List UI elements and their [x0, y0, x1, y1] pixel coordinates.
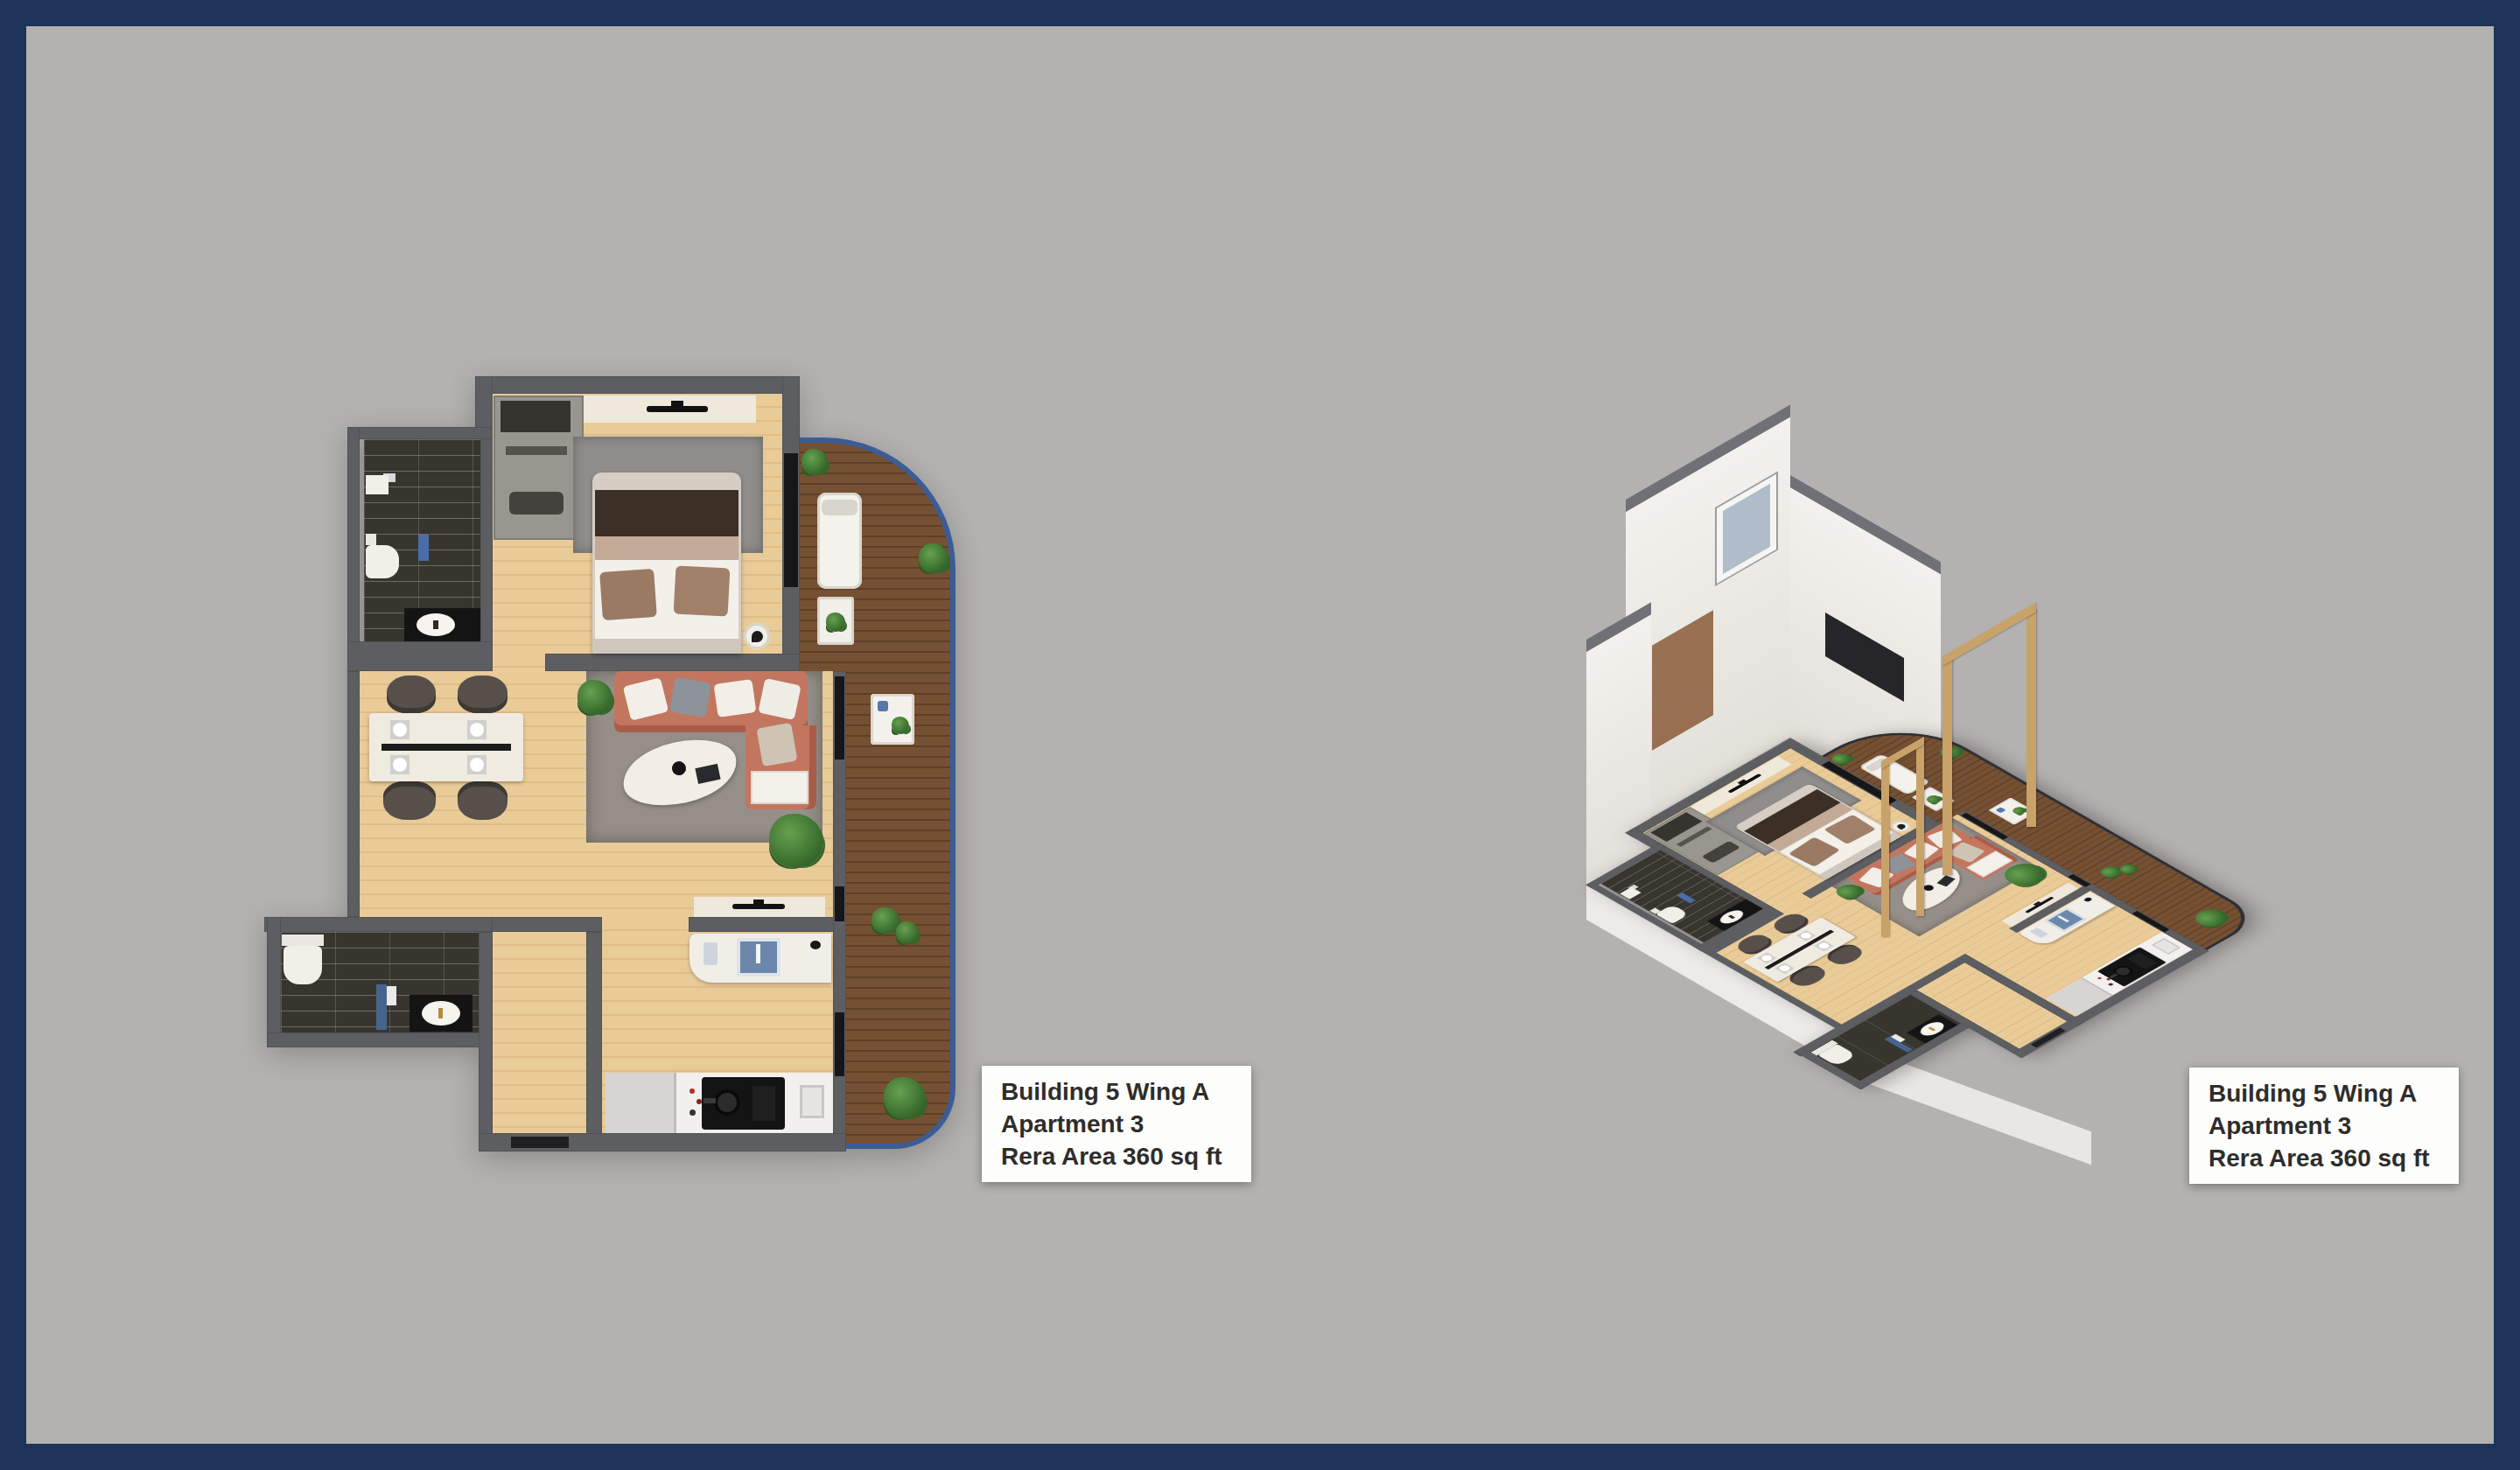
dining-chair: [383, 781, 436, 820]
tray-icon: [695, 764, 720, 784]
decor-icon: [1995, 807, 2005, 813]
plate-icon: [470, 758, 484, 772]
bedroom-balcony-door: [784, 453, 798, 587]
bath1-blue-accent: [418, 535, 429, 561]
floorplan-2d: [264, 372, 955, 1151]
door-frame-post: [1916, 741, 1924, 916]
placemat: [390, 755, 409, 774]
tv-icon: [732, 904, 785, 909]
cooktop: [702, 1077, 785, 1130]
bed-blanket: [595, 490, 738, 536]
kitchen-balcony-door: [835, 1012, 844, 1076]
bed-pillow-left: [599, 569, 657, 620]
bed: [592, 472, 741, 654]
kitchen-doorway: [602, 917, 689, 932]
tv-mount-icon: [671, 401, 683, 406]
lounge-headrest: [822, 500, 857, 515]
plate-icon: [1816, 941, 1830, 949]
sofa-throw-blanket: [751, 771, 808, 804]
grill-icon: [752, 1086, 775, 1121]
toilet1-tank: [366, 534, 376, 545]
table-runner: [381, 744, 511, 751]
label-line: Apartment 3: [1001, 1108, 1232, 1140]
pan-handle-icon: [703, 1098, 716, 1103]
kettle-icon: [2083, 897, 2093, 902]
potted-plant: [1924, 794, 1943, 805]
kitchen-sink: [2152, 938, 2181, 955]
plant: [896, 921, 919, 944]
tv-mount-icon: [753, 899, 764, 904]
kitchen-sink: [800, 1085, 824, 1118]
bedroom-doorway: [493, 654, 545, 671]
bed-pillow-right: [674, 565, 731, 616]
sofa-cushion: [669, 677, 711, 718]
faucet-icon: [756, 944, 760, 963]
door-frame-post: [2026, 608, 2036, 827]
toilet2-tank: [282, 934, 324, 946]
kettle-icon: [810, 941, 821, 949]
plate-icon: [1799, 932, 1813, 940]
spice-jar-icon: [689, 1109, 696, 1116]
sofa-cushion: [623, 677, 668, 720]
bedroom-north-wall: [475, 376, 800, 394]
tray-icon: [1937, 875, 1956, 886]
bath2-faucet-icon: [438, 1008, 443, 1018]
label-line: Apartment 3: [2208, 1109, 2439, 1142]
balcony-table: [871, 694, 914, 745]
label-line: Building 5 Wing A: [1001, 1075, 1232, 1108]
dining-chair: [458, 781, 507, 820]
wardrobe-shelf-items: [506, 446, 567, 455]
living-tv-console: [694, 897, 825, 917]
bedside-table: [744, 623, 770, 649]
dining-chair: [458, 675, 507, 713]
dining-table: [369, 713, 523, 781]
bathroom2-west-wall: [267, 917, 281, 1047]
placemat: [467, 755, 486, 774]
divider-wall-east: [689, 917, 846, 932]
bathroom2-south-wall: [267, 1032, 493, 1047]
spice-jar-icon: [2108, 983, 2114, 986]
plate-icon: [1777, 964, 1791, 972]
cutting-board-icon: [2030, 927, 2048, 938]
floorplan-3d: [1505, 394, 2292, 1181]
placemat: [1774, 962, 1794, 974]
balcony-door-small: [835, 886, 844, 921]
plate-icon: [470, 723, 484, 737]
spice-jar-icon: [2096, 976, 2102, 980]
decor-icon: [878, 701, 888, 711]
unit-label-2d: Building 5 Wing A Apartment 3 Rera Area …: [982, 1066, 1251, 1182]
isometric-floor: [1544, 516, 2236, 1296]
kitchen-counter: [605, 1073, 833, 1133]
plate-icon: [1760, 954, 1774, 962]
potted-plant: [892, 717, 909, 734]
placemat: [390, 720, 409, 739]
kitchen-west-wall: [586, 932, 602, 1151]
label-line: Building 5 Wing A: [2208, 1077, 2439, 1109]
slide-canvas: Building 5 Wing A Apartment 3 Rera Area …: [26, 26, 2494, 1444]
cutting-board-icon: [703, 942, 717, 965]
balcony-side-table: [817, 597, 854, 645]
pan-handle-icon: [2109, 973, 2117, 978]
dining-chair: [387, 675, 436, 713]
pan-icon: [714, 1089, 740, 1116]
bath1-faucet-icon: [433, 620, 438, 629]
tv-icon: [647, 406, 708, 412]
bedroom-tv-console: [584, 395, 756, 423]
entry-door: [511, 1137, 569, 1148]
bed-headboard: [592, 639, 741, 654]
living-balcony-door: [835, 676, 844, 759]
plant: [919, 543, 948, 573]
wardrobe-shoes: [509, 492, 563, 514]
bedside-decor-icon: [752, 631, 763, 642]
bathroom1-north-wall: [347, 427, 493, 439]
grill-icon: [2128, 953, 2158, 969]
plant: [884, 1077, 926, 1119]
wardrobe-cabinet: [500, 401, 570, 432]
spice-jar-icon: [689, 1088, 695, 1094]
fridge: [605, 1073, 676, 1133]
kitchen-island: [689, 934, 831, 983]
building-west-wall: [347, 671, 360, 917]
placemat: [1814, 940, 1833, 951]
plant: [577, 680, 612, 715]
potted-plant: [826, 612, 845, 632]
plant: [801, 449, 828, 475]
bathroom1-south-wall: [347, 641, 493, 671]
sofa-back-section: [614, 671, 808, 732]
bathroom2-north-wall: [267, 917, 493, 932]
sofa-cushion: [758, 678, 801, 720]
bathroom1-west-wall: [347, 427, 360, 654]
plate-icon: [393, 723, 407, 737]
toilet1: [366, 545, 399, 578]
bed-sheet: [595, 536, 738, 560]
door-frame-post: [1942, 656, 1952, 875]
bedroom-south-wall: [545, 654, 800, 671]
toilet2: [283, 946, 322, 984]
shower-fixture-icon: [366, 475, 388, 494]
bedside-decor-icon: [1895, 823, 1907, 830]
label-line: Rera Area 360 sq ft: [1001, 1140, 1232, 1172]
bath2-shower-panel: [376, 984, 387, 1030]
sofa-cushion: [756, 723, 797, 766]
label-line: Rera Area 360 sq ft: [2208, 1142, 2439, 1174]
bath1-vanity: [404, 608, 480, 641]
plate-icon: [393, 758, 407, 772]
bath2-control-icon: [387, 986, 396, 1005]
corridor-west-wall: [479, 932, 493, 1134]
hall-corridor-floor: [493, 932, 586, 1133]
wardrobe: [493, 395, 584, 540]
bathroom1-east-wall: [480, 427, 493, 654]
plant: [769, 814, 823, 868]
sofa-chaise-section: [745, 725, 816, 809]
balcony-lounge-chair: [817, 493, 862, 589]
bath2-vanity: [409, 995, 472, 1032]
placemat: [467, 720, 486, 739]
sofa-cushion: [714, 679, 757, 717]
wardrobe-shoes: [1701, 841, 1740, 864]
brochure-slide: Building 5 Wing A Apartment 3 Rera Area …: [0, 0, 2520, 1470]
door-frame-post: [1881, 761, 1889, 936]
cup-icon: [670, 760, 687, 777]
